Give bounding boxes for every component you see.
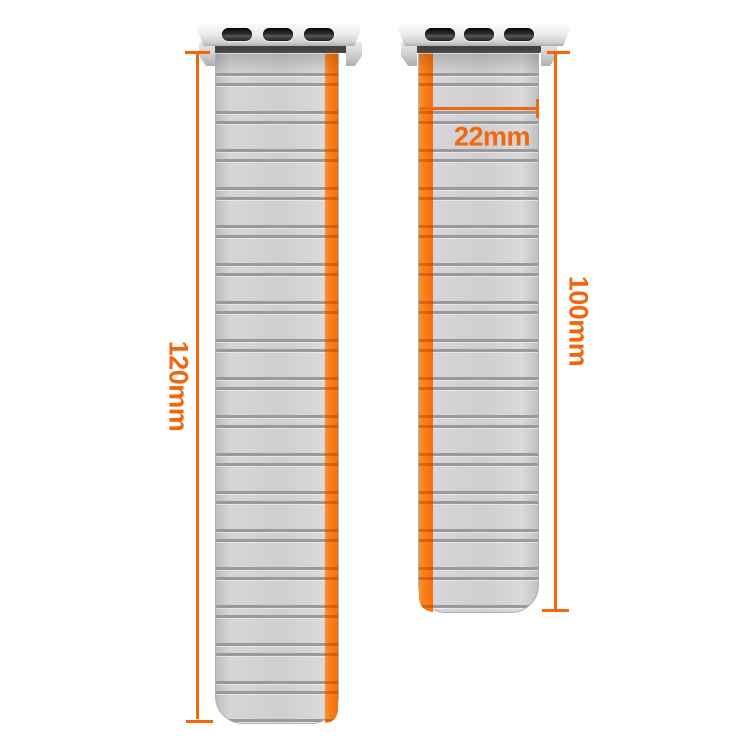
right-band-connector xyxy=(398,24,570,46)
left-band-connector xyxy=(197,24,361,46)
connector-slot-icon xyxy=(222,28,252,41)
right-length-measure-line xyxy=(554,52,557,610)
connector-slot-icon xyxy=(504,28,534,41)
right-length-label: 100mm xyxy=(563,276,594,367)
left-strap-orange-stripe xyxy=(325,49,338,723)
left-strap xyxy=(215,48,339,724)
width-label: 22mm xyxy=(454,122,530,153)
connector-slot-icon xyxy=(263,28,293,41)
watch-band-dimension-diagram: 120mm 100mm 22mm xyxy=(0,0,750,750)
left-length-label: 120mm xyxy=(163,341,194,432)
left-length-measure-line xyxy=(196,52,199,719)
right-length-measure-tick-bottom xyxy=(542,609,569,612)
connector-slot-icon xyxy=(464,28,494,41)
width-measure-tick-right xyxy=(536,99,539,118)
left-length-measure-tick-bottom xyxy=(186,720,213,723)
width-measure-line xyxy=(420,107,539,110)
connector-slot-icon xyxy=(304,28,334,41)
left-length-measure-tick-top xyxy=(185,51,210,54)
right-strap-orange-stripe xyxy=(419,49,433,612)
connector-slot-icon xyxy=(425,28,455,41)
right-length-measure-tick-top xyxy=(547,51,570,54)
